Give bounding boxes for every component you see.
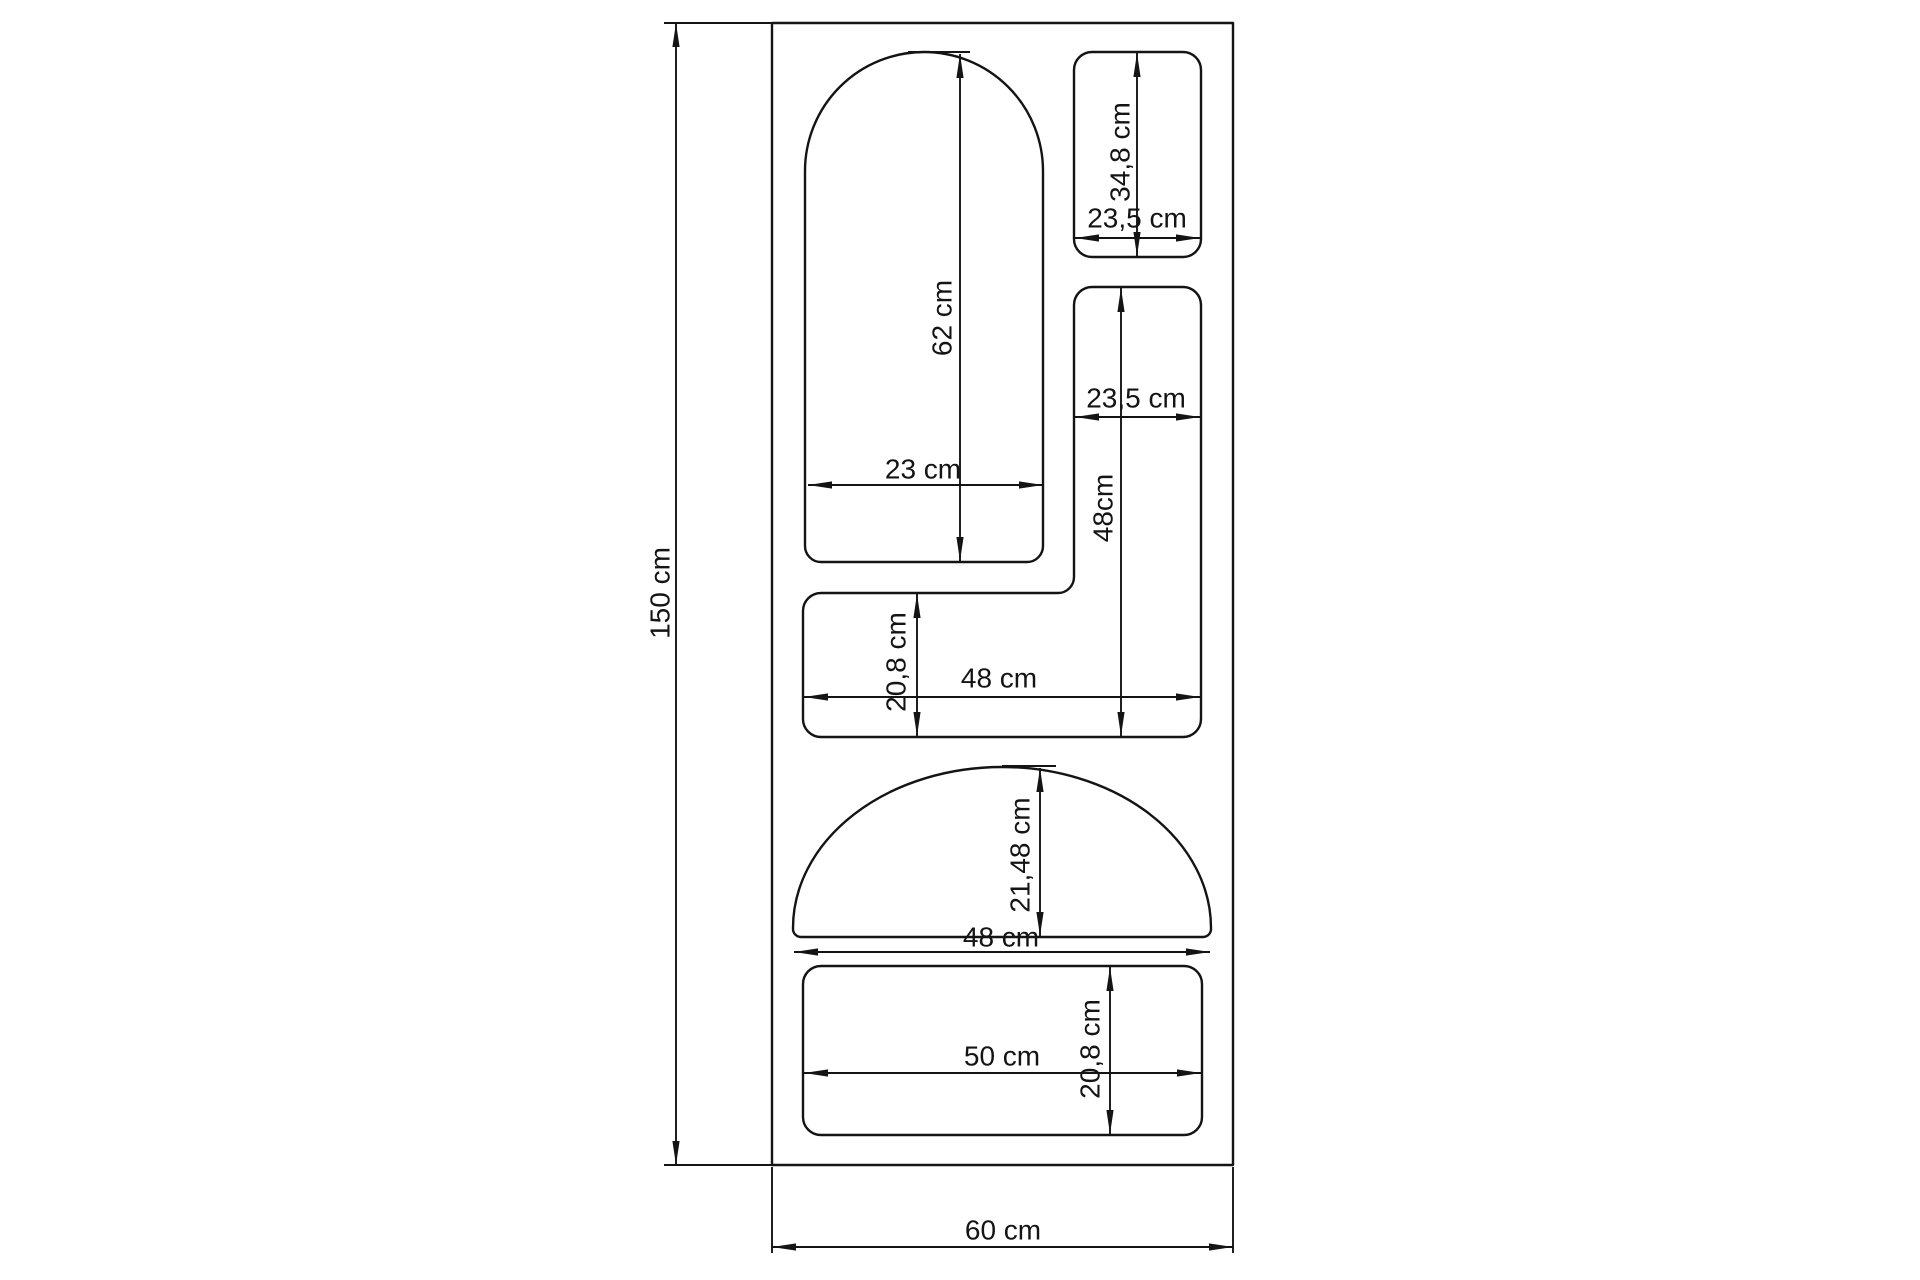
dimension-drawing: 150 cm 60 cm 62 cm 23 cm 34,8 cm 23,5 cm… xyxy=(0,0,1920,1280)
dim-label-mid-rect-height: 48cm xyxy=(1088,474,1119,542)
dim-label-total-height: 150 cm xyxy=(645,547,676,639)
dim-label-arch-height: 62 cm xyxy=(927,280,958,356)
dim-label-bottom-rect-width: 50 cm xyxy=(964,1041,1040,1072)
dim-label-total-width: 60 cm xyxy=(965,1215,1041,1246)
dim-label-arch-width: 23 cm xyxy=(885,454,961,485)
technical-drawing-canvas: 150 cm 60 cm 62 cm 23 cm 34,8 cm 23,5 cm… xyxy=(0,0,1920,1280)
dim-label-top-rect-width: 23,5 cm xyxy=(1087,203,1187,234)
dim-label-bottom-rect-height: 20,8 cm xyxy=(1075,999,1106,1099)
dim-label-dome-width: 48 cm xyxy=(963,922,1039,953)
dim-label-dome-height: 21,48 cm xyxy=(1005,797,1036,912)
dim-label-band-height: 20,8 cm xyxy=(881,612,912,712)
dim-label-band-width: 48 cm xyxy=(961,663,1037,694)
dome-cutout-outline xyxy=(793,767,1211,937)
dim-label-top-rect-height: 34,8 cm xyxy=(1105,102,1136,202)
dimension-labels: 150 cm 60 cm 62 cm 23 cm 34,8 cm 23,5 cm… xyxy=(645,102,1187,1245)
dim-label-mid-rect-width: 23,5 cm xyxy=(1086,383,1186,414)
shape-outlines xyxy=(772,23,1233,1165)
dim-total-height xyxy=(664,23,772,1165)
